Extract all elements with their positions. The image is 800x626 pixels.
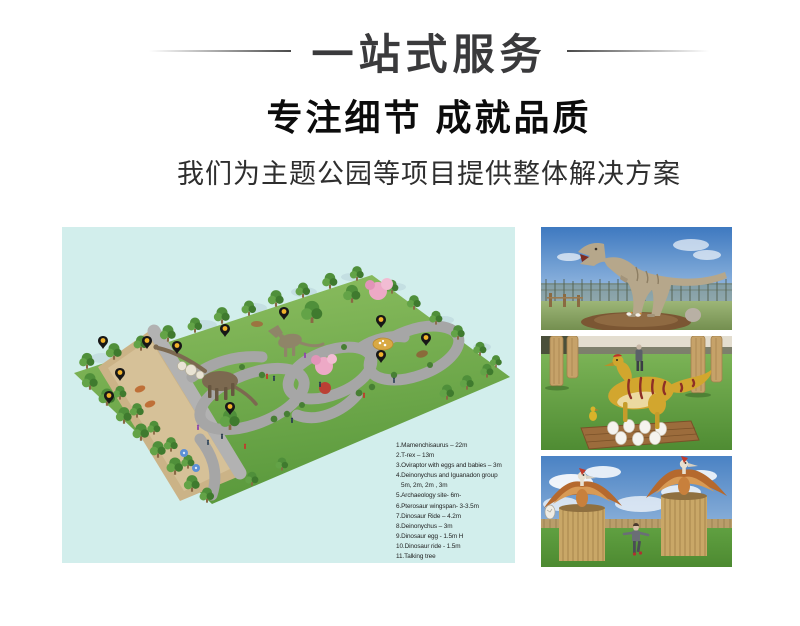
- legend-item: 11.Talking tree: [396, 552, 502, 562]
- legend-item: 7.Dinosaur Ride – 4.2m: [396, 512, 502, 522]
- main-content: 1.Mamenchisaurus – 22m 2.T-rex – 13m 3.O…: [62, 227, 800, 567]
- page-title: 一站式服务: [311, 21, 546, 82]
- legend-item-continued: 5m, 2m, 2m , 3m: [396, 481, 502, 491]
- photo-column: [541, 227, 732, 567]
- legend-item: 4.Deinonychus and Iguanadon group: [396, 471, 502, 481]
- page-description: 我们为主题公园等项目提供整体解决方案: [58, 152, 800, 191]
- legend-item: 3.Oviraptor with eggs and babies – 3m: [396, 461, 502, 471]
- pterosaur-nest: [373, 338, 393, 350]
- legend-item: 6.Pterosaur wingspan- 3-3.5m: [396, 502, 502, 512]
- rock: [685, 308, 701, 322]
- legend-item: 8.Deinonychus – 3m: [396, 522, 502, 532]
- legend-item: 5.Archaeology site- 6m-: [396, 491, 502, 501]
- map-legend: 1.Mamenchisaurus – 22m 2.T-rex – 13m 3.O…: [396, 441, 502, 562]
- photo-oviraptor-nest: [541, 336, 732, 450]
- left-post-tower: [559, 504, 605, 561]
- legend-item: 9.Dinosaur egg - 1.5m H: [396, 532, 502, 542]
- legend-item: 10.Dinosaur ride - 1.5m: [396, 542, 502, 552]
- title-row: 一站式服务: [58, 26, 800, 76]
- egg-decoration: [545, 505, 555, 519]
- photo-pterosaurs: [541, 456, 732, 567]
- legend-item: 1.Mamenchisaurus – 22m: [396, 441, 502, 451]
- page-subtitle: 专注细节 成就品质: [58, 89, 800, 141]
- right-post-tower: [661, 492, 707, 556]
- red-bush: [319, 382, 331, 394]
- park-map-panel: 1.Mamenchisaurus – 22m 2.T-rex – 13m 3.O…: [62, 227, 515, 563]
- title-rule-right: [567, 50, 709, 52]
- photo-trex-model: [541, 227, 732, 330]
- legend-item: 2.T-rex – 13m: [396, 451, 502, 461]
- title-rule-left: [149, 50, 291, 52]
- page-header: 一站式服务 专注细节 成就品质 我们为主题公园等项目提供整体解决方案: [0, 0, 800, 191]
